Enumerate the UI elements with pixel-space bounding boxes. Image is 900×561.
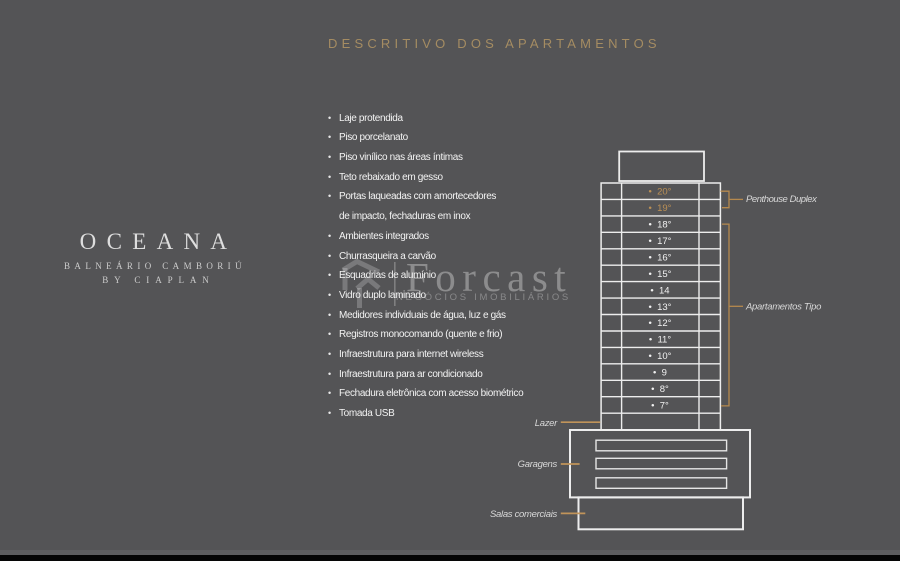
svg-text:• 15°: • 15° [649, 269, 672, 280]
svg-text:• 18°: • 18° [649, 220, 672, 231]
svg-text:Garagens: Garagens [518, 459, 558, 470]
svg-text:• 8°: • 8° [651, 384, 669, 395]
svg-text:• 20°: • 20° [649, 187, 672, 198]
svg-text:• 13°: • 13° [649, 302, 672, 313]
svg-text:• 11°: • 11° [649, 335, 671, 346]
svg-text:• 12°: • 12° [649, 318, 672, 329]
svg-text:Salas comerciais: Salas comerciais [490, 509, 558, 520]
svg-text:• 9: • 9 [653, 368, 667, 379]
svg-text:• 19°: • 19° [649, 203, 672, 214]
svg-text:• 7°: • 7° [651, 400, 669, 411]
svg-text:• 17°: • 17° [649, 236, 672, 247]
svg-text:Lazer: Lazer [535, 418, 558, 429]
svg-text:• 16°: • 16° [649, 252, 672, 263]
svg-text:• 10°: • 10° [649, 351, 672, 362]
svg-text:• 14: • 14 [650, 285, 669, 296]
svg-text:Penthouse Duplex: Penthouse Duplex [746, 194, 818, 205]
svg-text:Apartamentos Tipo: Apartamentos Tipo [745, 302, 821, 313]
